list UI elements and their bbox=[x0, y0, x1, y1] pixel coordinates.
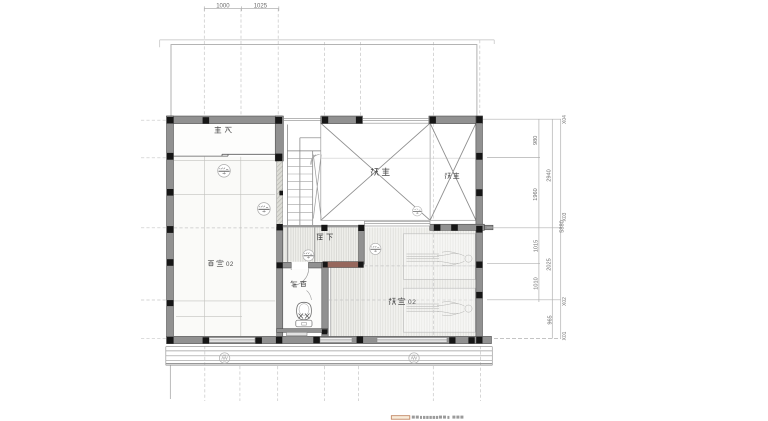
svg-text:X01: X01 bbox=[562, 331, 568, 340]
svg-text:1000: 1000 bbox=[216, 4, 230, 10]
svg-text:X04: X04 bbox=[562, 115, 568, 124]
svg-text:02: 02 bbox=[408, 299, 416, 306]
svg-text:2940: 2940 bbox=[547, 169, 553, 181]
svg-text:X02: X02 bbox=[562, 297, 568, 306]
svg-text:965: 965 bbox=[548, 315, 554, 324]
svg-text:2025: 2025 bbox=[547, 258, 553, 270]
svg-text:X03: X03 bbox=[562, 212, 568, 221]
svg-text:1010: 1010 bbox=[534, 277, 540, 289]
svg-text:1015: 1015 bbox=[534, 240, 540, 252]
svg-text:02: 02 bbox=[226, 261, 234, 268]
svg-text:1025: 1025 bbox=[254, 4, 268, 10]
svg-text:980: 980 bbox=[533, 136, 539, 145]
svg-text:1960: 1960 bbox=[533, 188, 539, 200]
